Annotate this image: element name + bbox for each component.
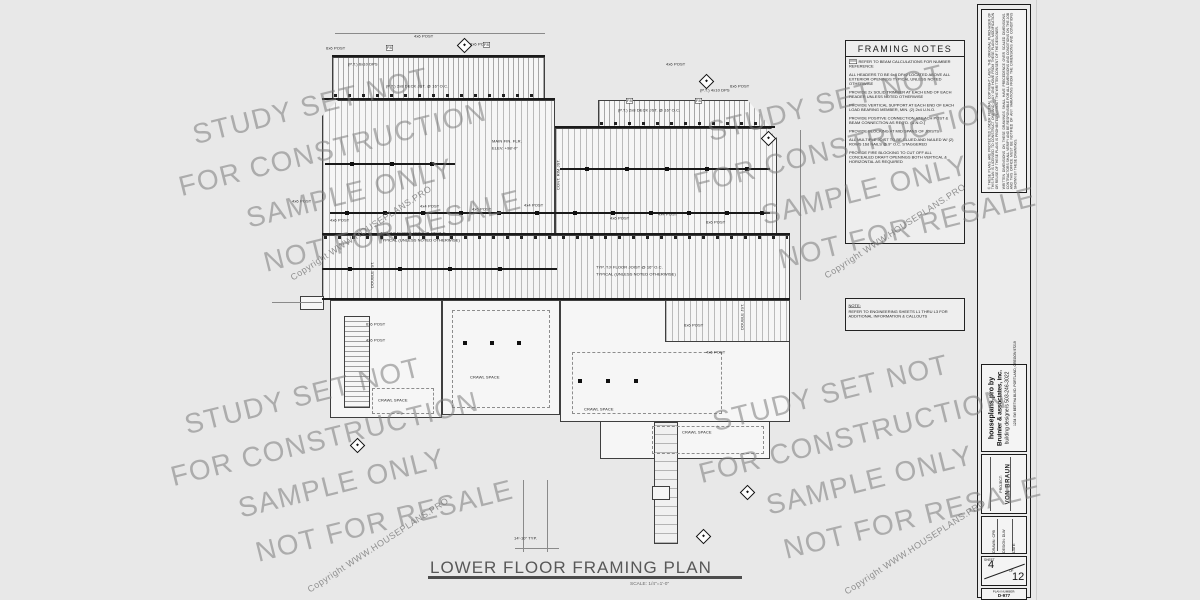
post-square [448, 267, 452, 271]
dimension-line [515, 548, 559, 549]
post-square [398, 267, 402, 271]
lower-right-joist-strip [665, 300, 790, 342]
sheet-number: 4 [988, 559, 994, 571]
drawn-field: DRAWN: CPB [992, 537, 997, 553]
plan-label: CONT. RIM JST. [556, 159, 561, 190]
post-square [578, 379, 582, 383]
post-square [517, 341, 521, 345]
plan-label: 6x6 POST [366, 322, 385, 327]
plan-label: 4x6 POST [666, 62, 685, 67]
note-title: NOTE: [849, 304, 861, 309]
sheet-total: 12 [1012, 571, 1024, 583]
plan-label: 4x6 POST [414, 34, 433, 39]
plan-label: 14'-10" TYP. [514, 536, 537, 541]
plan-tag: F8 [695, 98, 702, 104]
design-field: DESIGN: DLW [1002, 537, 1007, 553]
plan-tag: F8 [386, 45, 393, 51]
post-square [687, 211, 691, 215]
post-square [611, 211, 615, 215]
plan-label: 6x6 POST [684, 323, 703, 328]
dimension-line [272, 302, 322, 303]
sheet-number-box: SHEET 4 OF 12 [981, 556, 1027, 586]
plan-tag: F8 [483, 42, 490, 48]
plan-label: TYP. TJI FLOOR JOIST @ 16" O.C. [596, 265, 663, 270]
dimension-line [335, 33, 545, 34]
plan-label: (P.T.) 2x8 DECK JST. @ 16" O.C. [618, 108, 680, 113]
plan-label: CRAWL SPACE [584, 407, 614, 412]
post-square [665, 167, 669, 171]
post-square [606, 379, 610, 383]
beam-line [322, 298, 790, 300]
detail-marker-diamond [699, 74, 715, 90]
date-field: DATE: [1012, 537, 1017, 553]
plan-label: 4x4 POST [658, 212, 677, 217]
plan-label: DOUBLE JST. [370, 262, 375, 288]
plan-tag: F8 [626, 98, 633, 104]
post-square [585, 167, 589, 171]
beam-line [322, 268, 557, 270]
plan-label: 6x6 POST [326, 46, 345, 51]
post-square [348, 267, 352, 271]
post-square [490, 341, 494, 345]
post-square [498, 267, 502, 271]
dimension-line [547, 480, 548, 552]
drawing-sheet: (P.T.) 2x8 DECK JST. @ 16" O.C.(P.T.) 2x… [0, 0, 1200, 600]
plan-label: (P.T.) 4x10 DPS [700, 88, 730, 93]
post-square [535, 211, 539, 215]
engineering-note-box: NOTE: REFER TO ENGINEERING SHEETS L1 THR… [845, 298, 965, 331]
plan-number: D-977 [993, 593, 1016, 598]
post-square [573, 211, 577, 215]
sheet-title: LOWER FLOOR FRAMING PLAN [430, 558, 712, 578]
plan-label: 4x4 POST [524, 203, 543, 208]
plan-label: 6x6 POST [730, 84, 749, 89]
post-square [634, 379, 638, 383]
plan-number-box: PLAN NUMBER: D-977 [981, 588, 1027, 600]
left-stub [300, 296, 324, 310]
plan-label: DOUBLE JST. [740, 304, 745, 330]
plan-label: 4x6 POST [706, 350, 725, 355]
post-square [625, 167, 629, 171]
detail-marker-diamond [696, 529, 712, 545]
note-body: REFER TO ENGINEERING SHEETS L1 THRU L3 F… [849, 310, 955, 319]
chimney-box [652, 486, 670, 500]
watermark-bottom-left: STUDY SET NOTFOR CONSTRUCTIONSAMPLE ONLY… [154, 329, 518, 591]
plan-label: 4x6 POST [366, 338, 385, 343]
plan-label: TYPICAL (UNLESS NOTED OTHERWISE) [596, 272, 676, 277]
scale-label: SCALE: 1/4"=1'-0" [630, 581, 669, 586]
dimension-line [523, 480, 524, 552]
plan-label: 4x6 POST [610, 216, 629, 221]
post-square [649, 211, 653, 215]
